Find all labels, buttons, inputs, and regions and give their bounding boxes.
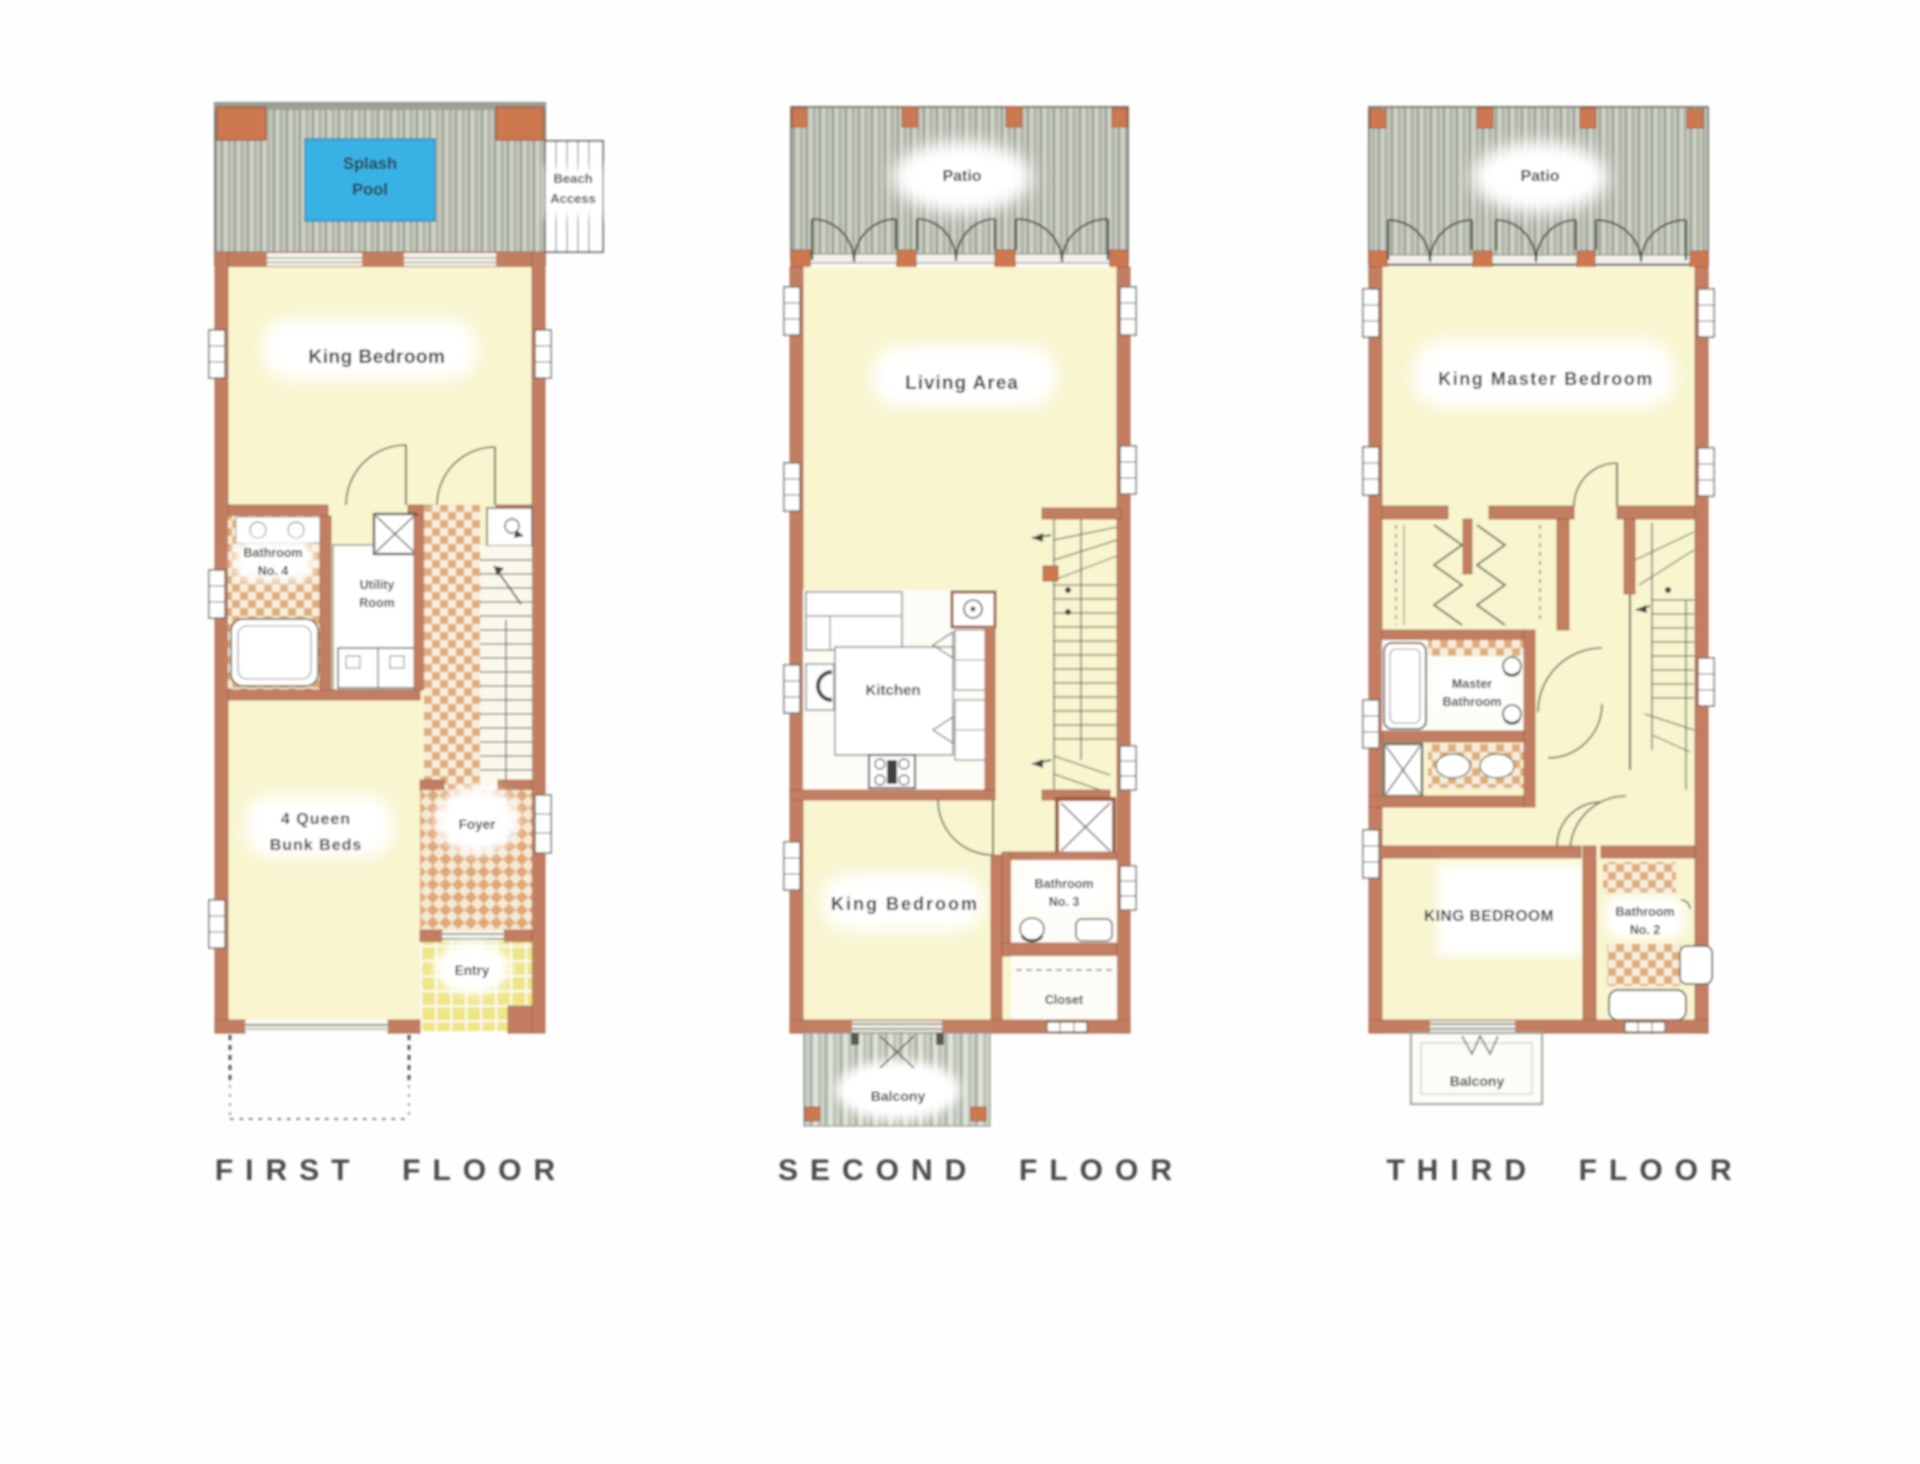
svg-text:Bathroom: Bathroom <box>1034 877 1093 891</box>
svg-text:King Master Bedroom: King Master Bedroom <box>1438 369 1654 389</box>
svg-text:Access: Access <box>550 191 596 206</box>
svg-text:THIRD FLOOR: THIRD FLOOR <box>1386 1154 1743 1187</box>
svg-text:FIRST FLOOR: FIRST FLOOR <box>215 1154 567 1187</box>
svg-text:Foyer: Foyer <box>459 817 497 832</box>
svg-text:Bathroom: Bathroom <box>1442 695 1501 709</box>
svg-text:Entry: Entry <box>455 963 490 978</box>
svg-text:Bathroom: Bathroom <box>243 546 302 560</box>
svg-text:Splash: Splash <box>343 155 397 173</box>
svg-text:Living Area: Living Area <box>905 373 1019 394</box>
svg-text:Beach: Beach <box>553 171 592 186</box>
svg-text:No. 3: No. 3 <box>1049 895 1080 909</box>
svg-text:Bunk Beds: Bunk Beds <box>270 837 363 854</box>
svg-text:Room: Room <box>359 596 394 610</box>
svg-text:King Bedroom: King Bedroom <box>831 894 979 914</box>
svg-text:SECOND FLOOR: SECOND FLOOR <box>778 1154 1184 1187</box>
svg-text:KING BEDROOM: KING BEDROOM <box>1424 908 1554 925</box>
svg-text:Balcony: Balcony <box>871 1088 926 1104</box>
svg-text:King Bedroom: King Bedroom <box>309 347 446 368</box>
svg-text:No. 4: No. 4 <box>258 564 289 578</box>
svg-text:4 Queen: 4 Queen <box>281 811 351 828</box>
svg-text:Bathroom: Bathroom <box>1615 905 1674 919</box>
svg-text:Pool: Pool <box>352 181 388 199</box>
svg-text:Balcony: Balcony <box>1450 1073 1505 1089</box>
svg-text:Closet: Closet <box>1045 993 1084 1007</box>
svg-text:Master: Master <box>1452 677 1492 691</box>
svg-text:Patio: Patio <box>942 168 981 185</box>
svg-text:No. 2: No. 2 <box>1630 923 1661 937</box>
svg-text:Utility: Utility <box>360 578 395 592</box>
svg-text:Patio: Patio <box>1520 168 1559 185</box>
svg-text:Kitchen: Kitchen <box>865 682 920 699</box>
